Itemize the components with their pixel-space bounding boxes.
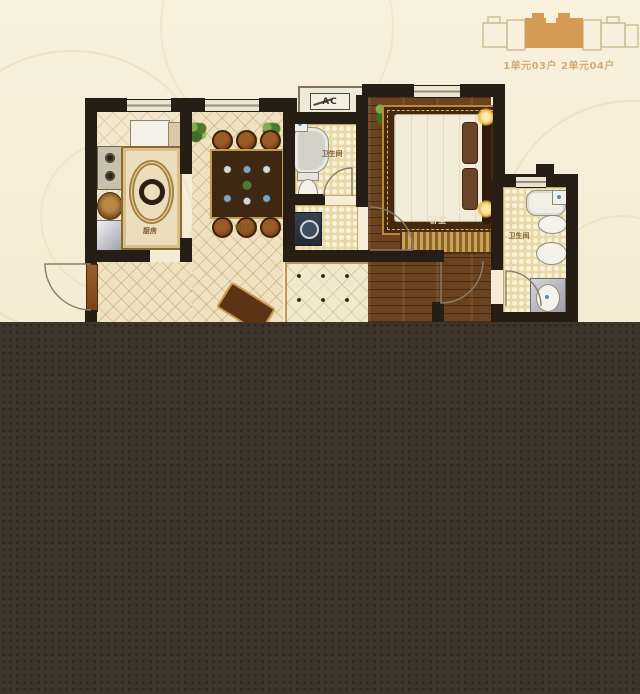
- window: [516, 176, 546, 188]
- room-label-bathroom1: 卫生间: [312, 149, 352, 159]
- window: [127, 99, 171, 112]
- dining-chair: [212, 130, 233, 151]
- wall: [566, 174, 578, 324]
- wall: [356, 95, 368, 207]
- pedestal-sink-icon: [536, 242, 567, 265]
- building-footprint-icon: [482, 8, 639, 58]
- wall: [362, 84, 414, 97]
- room-label-kitchen: 厨房: [132, 226, 168, 236]
- room-label-bedroom: 卧室: [420, 215, 456, 226]
- wall: [85, 98, 97, 264]
- room-label-bathroom2: 卫生间: [499, 231, 539, 241]
- wall: [536, 164, 554, 176]
- bed-pillow: [462, 122, 478, 164]
- dining-chair: [260, 130, 281, 151]
- window: [205, 99, 259, 112]
- ac-unit-icon: AC: [310, 93, 350, 110]
- entry-floor: [97, 262, 192, 322]
- dining-chair: [236, 130, 257, 151]
- sink-icon: [552, 190, 567, 205]
- wall: [283, 108, 295, 254]
- wall: [283, 250, 444, 262]
- rug-medallion: [129, 160, 174, 224]
- wall: [283, 194, 325, 205]
- toilet-icon: [538, 215, 567, 234]
- window: [414, 85, 460, 98]
- bottom-overlay-panel: [0, 322, 640, 694]
- ac-label: AC: [322, 97, 338, 107]
- dining-table: [210, 149, 284, 219]
- bed-pillow: [462, 168, 478, 210]
- wall: [180, 110, 192, 174]
- wall: [432, 302, 444, 324]
- wall: [493, 84, 505, 180]
- floor-plan-page: 1单元03户 2单元04户: [0, 0, 640, 694]
- unit-label: 1单元03户 2单元04户: [478, 57, 640, 72]
- wall: [491, 180, 503, 270]
- room-label-dining: 餐厅: [226, 222, 260, 233]
- dining-chair: [260, 217, 281, 238]
- kitchen-basket: [97, 192, 123, 220]
- washing-machine-icon: [294, 212, 322, 246]
- entry-door-panel: [86, 264, 98, 312]
- wall: [180, 238, 192, 262]
